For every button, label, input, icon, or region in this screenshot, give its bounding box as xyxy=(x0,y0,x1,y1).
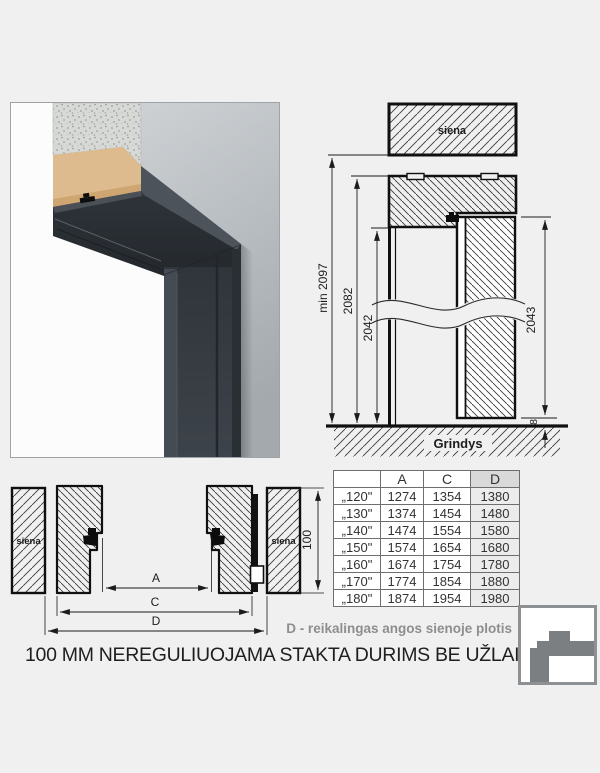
dim-label-clear-height: 2042 xyxy=(361,314,375,341)
table-header-cell: C xyxy=(424,471,471,488)
dimension-cell: 1774 xyxy=(381,573,424,590)
vertical-section-drawing: siena Grindys min 2097 2082 2042 xyxy=(318,96,600,474)
size-label-cell: „180" xyxy=(334,590,381,607)
table-header-cell: D xyxy=(471,471,520,488)
dimension-cell: 1374 xyxy=(381,505,424,522)
dim-label-min-height: min 2097 xyxy=(318,263,330,313)
dimension-cell: 1754 xyxy=(424,556,471,573)
foam-strip-lower xyxy=(253,583,258,592)
dimension-cell: 1574 xyxy=(381,539,424,556)
dimension-cell: 1854 xyxy=(424,573,471,590)
dimension-cell: 1954 xyxy=(424,590,471,607)
jamb-front-strip xyxy=(164,269,177,457)
table-header-cell xyxy=(334,471,381,488)
table-row: „140"147415541580 xyxy=(334,522,520,539)
head-seal-nub xyxy=(449,212,454,215)
floor-label: Grindys xyxy=(433,436,482,451)
dim-label-d: D xyxy=(152,614,161,628)
size-label-cell: „140" xyxy=(334,522,381,539)
dimension-cell: 1380 xyxy=(471,488,520,505)
anchor-plate xyxy=(251,566,264,583)
dimension-cell: 1474 xyxy=(381,522,424,539)
wall-shadow xyxy=(241,244,253,457)
table-header-cell: A xyxy=(381,471,424,488)
table-row: „160"167417541780 xyxy=(334,556,520,573)
brand-logo xyxy=(518,605,597,685)
size-label-cell: „150" xyxy=(334,539,381,556)
dim-label-frame-height: 2082 xyxy=(341,287,355,314)
logo-profile-icon xyxy=(530,648,549,682)
dimension-cell: 1480 xyxy=(471,505,520,522)
dimension-cell: 1780 xyxy=(471,556,520,573)
dimension-cell: 1580 xyxy=(471,522,520,539)
size-table-body: „120"127413541380„130"137414541480„140"1… xyxy=(334,488,520,607)
photo-render-svg xyxy=(11,103,279,457)
size-label-cell: „120" xyxy=(334,488,381,505)
left-wall-label: siena xyxy=(16,536,41,547)
dimension-cell: 1654 xyxy=(424,539,471,556)
size-label-cell: „130" xyxy=(334,505,381,522)
table-row: „120"127413541380 xyxy=(334,488,520,505)
dimension-cell: 1880 xyxy=(471,573,520,590)
table-row: „130"137414541480 xyxy=(334,505,520,522)
table-row: „180"187419541980 xyxy=(334,590,520,607)
dim-label-c: C xyxy=(151,595,160,609)
frame-corner-photo xyxy=(10,102,280,458)
dimension-cell: 1980 xyxy=(471,590,520,607)
dimension-cell: 1554 xyxy=(424,522,471,539)
page-canvas: siena Grindys min 2097 2082 2042 xyxy=(0,0,600,773)
dim-label-floor-gap: 8 xyxy=(528,419,540,425)
size-table: ACD „120"127413541380„130"137414541480„1… xyxy=(333,470,520,607)
d-note: D - reikalingas angos sienoje plotis xyxy=(200,621,512,636)
horizontal-section-drawing: siena siena 100 A C xyxy=(5,478,335,640)
dim-label-depth: 100 xyxy=(300,530,314,550)
dimension-cell: 1674 xyxy=(381,556,424,573)
size-label-cell: „170" xyxy=(334,573,381,590)
wall-label: siena xyxy=(438,125,467,137)
dimension-cell: 1680 xyxy=(471,539,520,556)
foam-strip-upper xyxy=(253,494,258,566)
head-notch xyxy=(407,174,424,180)
dim-label-a: A xyxy=(152,571,160,585)
head-seal xyxy=(446,215,459,222)
logo-profile-icon xyxy=(549,631,570,641)
right-wall-label: siena xyxy=(271,536,296,547)
table-row: „170"177418541880 xyxy=(334,573,520,590)
head-notch xyxy=(481,174,498,180)
dimension-cell: 1354 xyxy=(424,488,471,505)
size-label-cell: „160" xyxy=(334,556,381,573)
dimension-cell: 1274 xyxy=(381,488,424,505)
table-row: „150"157416541680 xyxy=(334,539,520,556)
dim-label-door-height: 2043 xyxy=(524,306,538,333)
jamb-inner-band xyxy=(232,249,241,457)
page-title: 100 MM NEREGULIUOJAMA STAKTA DURIMS BE U… xyxy=(25,644,525,667)
dimension-cell: 1454 xyxy=(424,505,471,522)
dimension-cell: 1874 xyxy=(381,590,424,607)
size-table-head: ACD xyxy=(334,471,520,488)
